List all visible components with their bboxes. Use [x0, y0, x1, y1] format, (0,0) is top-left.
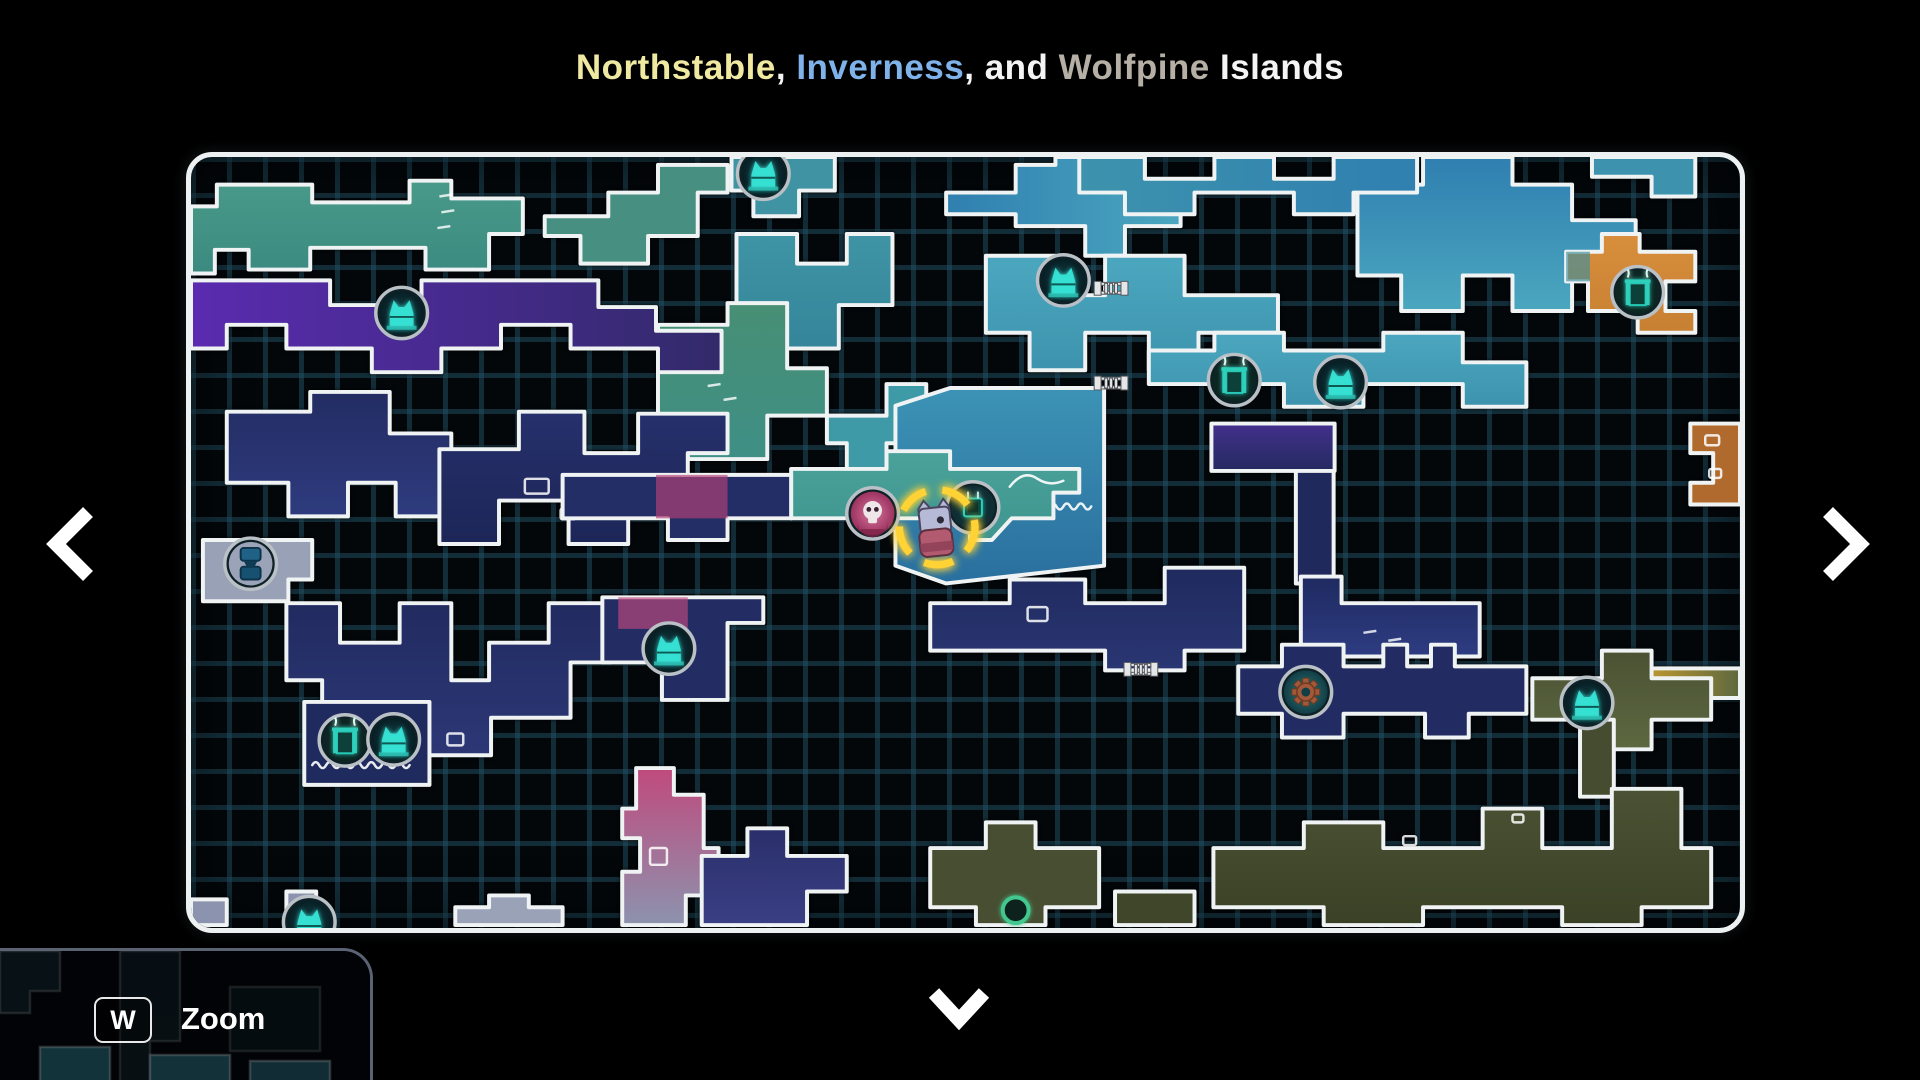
room-top-left-green [191, 181, 523, 274]
map-icon-cat-statue [1315, 356, 1367, 407]
zoom-key-letter: W [110, 1005, 135, 1036]
map-icon-cat-statue [376, 287, 428, 338]
map-icon-cat-statue [643, 623, 695, 674]
map-pan-down-button[interactable] [926, 984, 992, 1037]
room-olive-link [1580, 720, 1614, 797]
map-icon-gear [1280, 666, 1332, 717]
room-tower-top [1211, 424, 1334, 471]
map-icon-ladder [1124, 662, 1158, 676]
room-detail-platform [1403, 836, 1416, 845]
room-bl-gray1 [191, 899, 227, 925]
map-prev-button[interactable] [44, 505, 100, 588]
map-next-button[interactable] [1816, 505, 1872, 588]
title-segment: Inverness [796, 48, 964, 88]
title-segment: Islands [1210, 48, 1344, 88]
room-olive-band [1213, 789, 1711, 925]
room-detail-color-patch [1566, 252, 1590, 282]
title-segment: Wolfpine [1059, 48, 1210, 88]
room-olive-strip [1115, 891, 1194, 925]
room-bc-navy [702, 828, 847, 925]
map-icon-ladder [1094, 281, 1128, 295]
zoom-key-badge[interactable]: W [94, 997, 152, 1043]
title-segment: , [776, 48, 796, 88]
title-segment: Northstable [576, 48, 776, 88]
room-bl-gray3 [455, 895, 562, 925]
minimap-preview-panel: W Zoom [0, 948, 373, 1080]
room-ml-maze [227, 392, 452, 516]
room-tower-col [1296, 471, 1334, 584]
map-icon-cat-statue [737, 157, 789, 199]
page-title: Northstable, Inverness, and Wolfpine Isl… [0, 48, 1920, 88]
map-icon-cat-statue [368, 714, 420, 765]
map-icon-gate [319, 715, 371, 766]
chevron-left-icon [44, 505, 100, 583]
map-icon-gate [1208, 354, 1260, 405]
map-icon-totem [225, 538, 277, 589]
title-segment: , and [964, 48, 1058, 88]
room-top-left-green2 [545, 165, 728, 264]
map-svg [191, 157, 1740, 928]
map-screen: Northstable, Inverness, and Wolfpine Isl… [0, 0, 1920, 1080]
room-center [930, 568, 1244, 671]
chevron-down-icon [926, 984, 992, 1032]
room-tr-top [1592, 157, 1695, 196]
map-icon-ring [1003, 897, 1029, 923]
map-rooms-layer [191, 157, 1740, 925]
world-map-panel [186, 152, 1745, 933]
map-icon-cat-statue [1038, 255, 1090, 306]
map-icon-gate [1612, 267, 1664, 318]
chevron-right-icon [1816, 505, 1872, 583]
map-icon-cat-statue [1561, 677, 1613, 728]
room-purple-band [191, 280, 722, 372]
zoom-key-label: Zoom [181, 1001, 265, 1037]
room-olive-cat [1532, 651, 1711, 750]
map-icon-ladder [1094, 376, 1128, 390]
map-icon-skull [847, 488, 899, 539]
room-detail-color-patch [656, 475, 728, 518]
